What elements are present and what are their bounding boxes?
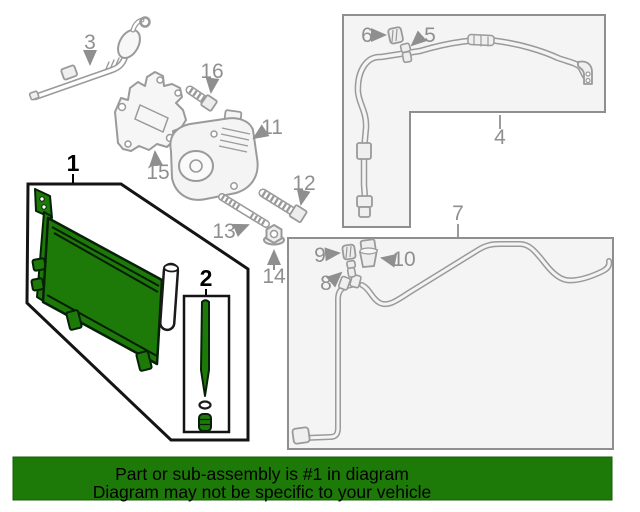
valve-cap-6-illustration <box>388 27 404 44</box>
callout-11-label: 11 <box>261 116 283 139</box>
part-4-box <box>343 15 605 227</box>
service-valve-10-illustration <box>360 239 377 267</box>
bolt-12-illustration <box>263 193 307 223</box>
callout-1: 1 <box>67 150 80 183</box>
callout-2: 2 <box>200 265 213 295</box>
o-ring-illustration <box>200 402 211 409</box>
callout-7: 7 <box>452 202 464 237</box>
callout-3: 3 <box>84 31 96 64</box>
callout-16-arrow <box>211 83 212 92</box>
valve-cap-9-illustration <box>342 244 356 260</box>
callout-4-label: 4 <box>494 126 506 149</box>
callout-13: 13 <box>212 220 248 243</box>
callout-11: 11 <box>254 116 283 139</box>
callout-13-arrow <box>236 225 248 230</box>
callout-9-label: 9 <box>314 244 326 267</box>
callout-16: 16 <box>200 60 223 92</box>
callout-15: 15 <box>146 152 169 184</box>
callout-9-arrow <box>328 253 339 254</box>
callout-14: 14 <box>262 251 286 288</box>
callout-12: 12 <box>292 172 315 204</box>
highlight-banner: Part or sub-assembly is #1 in diagram Di… <box>13 457 612 502</box>
callout-15-label: 15 <box>146 161 169 184</box>
callout-1-label: 1 <box>67 150 80 176</box>
callout-16-label: 16 <box>200 60 223 83</box>
callout-4: 4 <box>494 115 506 149</box>
banner-line-2: Diagram may not be specific to your vehi… <box>93 482 431 502</box>
parts-diagram: 1 2 3 4 5 6 7 8 9 10 11 12 <box>0 0 640 512</box>
callout-5-label: 5 <box>424 24 436 47</box>
callout-12-arrow <box>301 194 303 204</box>
callout-12-label: 12 <box>292 172 315 195</box>
callout-15-arrow <box>155 152 156 164</box>
banner-line-1: Part or sub-assembly is #1 in diagram <box>115 464 409 484</box>
callout-13-label: 13 <box>212 220 235 243</box>
callout-3-label: 3 <box>84 31 96 54</box>
callout-2-label: 2 <box>200 265 213 291</box>
callout-6-label: 6 <box>361 24 373 47</box>
callout-8-label: 8 <box>320 272 332 295</box>
callout-7-label: 7 <box>452 202 464 225</box>
bolt-16-illustration <box>190 90 217 111</box>
callout-10-label: 10 <box>392 248 415 271</box>
valve-core-8-illustration <box>347 260 356 277</box>
flange-nut-illustration <box>264 225 284 245</box>
